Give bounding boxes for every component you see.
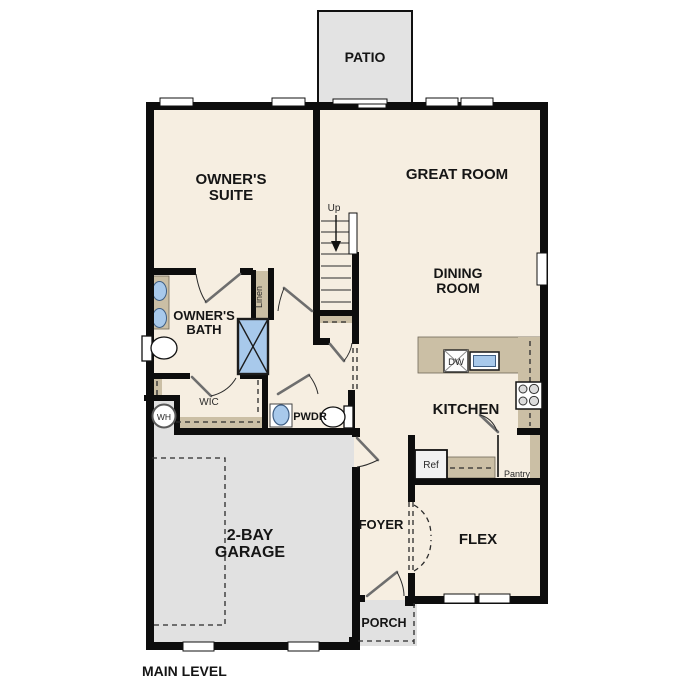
window-icon — [479, 594, 510, 603]
floor-plan: PATIO OWNER'S SUITE GREAT ROOM DINING RO… — [0, 0, 687, 687]
powder-sink — [270, 404, 292, 427]
floor-plan-canvas: PATIO OWNER'S SUITE GREAT ROOM DINING RO… — [0, 0, 687, 687]
wic-label: WIC — [199, 397, 218, 408]
garage-label-2: GARAGE — [215, 544, 286, 561]
stair-rail — [349, 213, 357, 254]
window-icon — [537, 253, 547, 285]
window-icon — [288, 642, 319, 651]
ref-label: Ref — [423, 460, 439, 471]
kitchen-sink — [470, 352, 499, 370]
pantry-label: Pantry — [504, 469, 531, 479]
main-level-title: MAIN LEVEL — [142, 663, 227, 679]
wh-label: WH — [157, 412, 171, 422]
window-icon — [461, 98, 493, 106]
great-room-label: GREAT ROOM — [406, 166, 508, 183]
window-icon — [426, 98, 458, 106]
pwdr-label: PWDR — [293, 411, 327, 423]
garage-label-1: 2-BAY — [227, 527, 274, 544]
pantry-shelf — [530, 435, 540, 478]
window-icon — [444, 594, 475, 603]
patio-label: PATIO — [345, 49, 386, 65]
shower — [238, 319, 268, 374]
foyer-label: FOYER — [359, 517, 404, 532]
owners-suite-label-1: OWNER'S — [195, 171, 266, 188]
linen-label: Linen — [254, 286, 264, 308]
up-label: Up — [328, 203, 341, 214]
porch-label: PORCH — [361, 616, 406, 630]
window-icon — [183, 642, 214, 651]
window-icon — [272, 98, 305, 106]
flex-label: FLEX — [459, 531, 497, 548]
owners-bath-label-2: BATH — [186, 322, 221, 337]
window-icon — [160, 98, 193, 106]
kitchen-label: KITCHEN — [433, 401, 500, 418]
owners-suite-label-2: SUITE — [209, 187, 253, 204]
dining-room-label-1: DINING — [434, 265, 483, 281]
dining-room-label-2: ROOM — [436, 280, 480, 296]
stove — [516, 382, 542, 409]
bath-toilet — [142, 336, 177, 361]
dw-label: DW — [448, 357, 464, 368]
owners-bath-label-1: OWNER'S — [173, 308, 235, 323]
